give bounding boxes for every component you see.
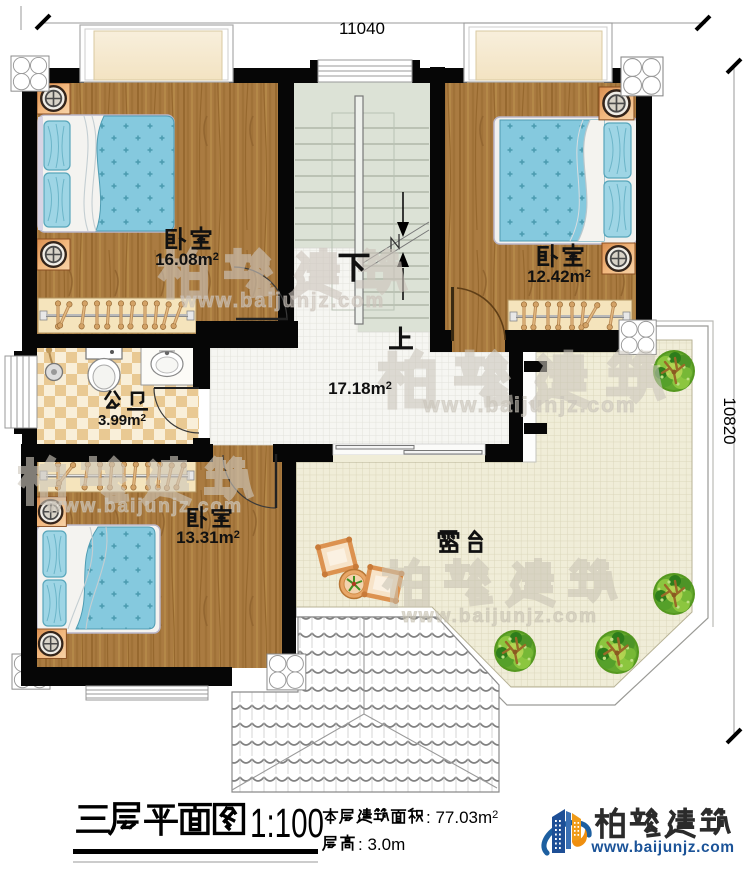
svg-text:17.18m2: 17.18m2 [328, 379, 392, 398]
svg-text:www.baijunjz.com: www.baijunjz.com [590, 839, 734, 856]
svg-text:www.baijunjz.com: www.baijunjz.com [401, 606, 598, 627]
svg-text:www.baijunjz.com: www.baijunjz.com [422, 394, 636, 417]
svg-text:: 77.03m2: : 77.03m2 [426, 808, 498, 827]
svg-text:: 3.0m: : 3.0m [358, 835, 405, 854]
svg-text:3.99m2: 3.99m2 [98, 412, 147, 429]
svg-text:1:100: 1:100 [250, 800, 324, 846]
svg-text:13.31m2: 13.31m2 [176, 528, 240, 547]
svg-text:12.42m2: 12.42m2 [527, 267, 591, 286]
svg-text:10820: 10820 [720, 397, 739, 444]
svg-text:16.08m2: 16.08m2 [155, 250, 219, 269]
svg-text:11040: 11040 [339, 19, 385, 38]
svg-text:www.baijunjz.com: www.baijunjz.com [180, 290, 386, 312]
